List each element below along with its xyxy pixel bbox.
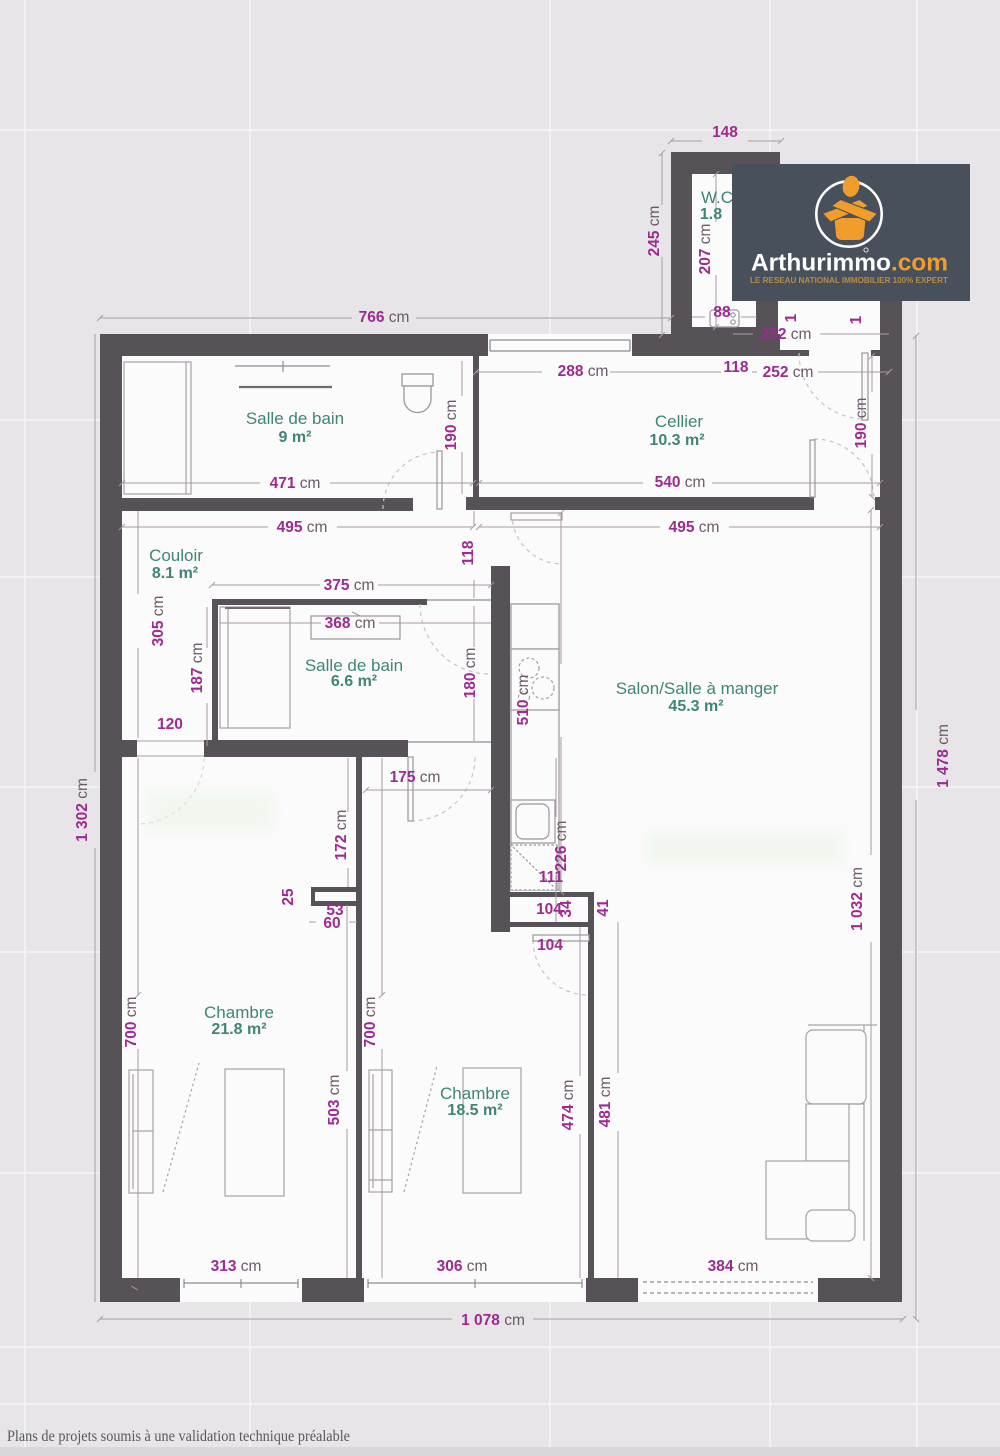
- svg-text:45.3 m²: 45.3 m²: [668, 698, 723, 715]
- svg-text:21.8 m²: 21.8 m²: [211, 1021, 266, 1038]
- svg-text:Arthurimmo.com: Arthurimmo.com: [751, 250, 948, 277]
- svg-text:252 cm: 252 cm: [761, 326, 812, 343]
- svg-text:471 cm: 471 cm: [270, 475, 321, 492]
- svg-text:18.5 m²: 18.5 m²: [447, 1102, 502, 1119]
- svg-text:766 cm: 766 cm: [359, 309, 410, 326]
- svg-text:288 cm: 288 cm: [558, 363, 609, 380]
- svg-text:10.3 m²: 10.3 m²: [649, 432, 704, 449]
- svg-text:474 cm: 474 cm: [560, 1080, 577, 1131]
- svg-text:187 cm: 187 cm: [189, 643, 206, 694]
- svg-text:175 cm: 175 cm: [390, 769, 441, 786]
- svg-text:190 cm: 190 cm: [853, 398, 870, 449]
- svg-text:6.6 m²: 6.6 m²: [331, 673, 377, 690]
- svg-text:1 078 cm: 1 078 cm: [461, 1312, 525, 1329]
- svg-text:495 cm: 495 cm: [277, 519, 328, 536]
- svg-text:Plans de projets soumis à une: Plans de projets soumis à une validation…: [7, 1428, 350, 1445]
- svg-text:495 cm: 495 cm: [669, 519, 720, 536]
- svg-text:190 cm: 190 cm: [443, 400, 460, 451]
- svg-text:118: 118: [460, 540, 477, 565]
- svg-text:1 478 cm: 1 478 cm: [935, 724, 952, 788]
- svg-text:180 cm: 180 cm: [462, 648, 479, 699]
- svg-text:9 m²: 9 m²: [279, 429, 312, 446]
- svg-text:120: 120: [157, 716, 183, 733]
- svg-text:W.C: W.C: [701, 188, 733, 207]
- svg-text:503 cm: 503 cm: [326, 1075, 343, 1126]
- svg-text:41: 41: [595, 899, 612, 917]
- svg-text:510 cm: 510 cm: [515, 675, 532, 726]
- svg-text:Chambre: Chambre: [440, 1084, 510, 1103]
- svg-text:1.8: 1.8: [700, 206, 722, 223]
- svg-text:148: 148: [712, 124, 738, 141]
- svg-text:245 cm: 245 cm: [646, 206, 663, 257]
- svg-text:1 302 cm: 1 302 cm: [74, 778, 91, 842]
- svg-text:LE RESEAU NATIONAL IMMOBILIER: LE RESEAU NATIONAL IMMOBILIER 100% EXPER…: [750, 275, 949, 285]
- svg-text:88: 88: [713, 304, 731, 321]
- svg-text:700 cm: 700 cm: [123, 997, 140, 1048]
- svg-text:481 cm: 481 cm: [597, 1077, 614, 1128]
- svg-text:1: 1: [783, 313, 800, 322]
- svg-text:368 cm: 368 cm: [325, 615, 376, 632]
- svg-text:384 cm: 384 cm: [708, 1258, 759, 1275]
- svg-text:1: 1: [848, 315, 865, 324]
- svg-text:8.1 m²: 8.1 m²: [152, 565, 198, 582]
- svg-text:207 cm: 207 cm: [697, 224, 714, 275]
- svg-text:1 032 cm: 1 032 cm: [849, 867, 866, 931]
- svg-text:252 cm: 252 cm: [763, 364, 814, 381]
- svg-text:Salon/Salle à manger: Salon/Salle à manger: [616, 679, 779, 698]
- svg-text:104: 104: [537, 937, 563, 954]
- svg-text:Cellier: Cellier: [655, 412, 704, 431]
- svg-text:Couloir: Couloir: [149, 546, 203, 565]
- svg-text:306 cm: 306 cm: [437, 1258, 488, 1275]
- svg-text:313 cm: 313 cm: [211, 1258, 262, 1275]
- svg-text:700 cm: 700 cm: [362, 997, 379, 1048]
- svg-text:305 cm: 305 cm: [150, 596, 167, 647]
- svg-text:34: 34: [558, 900, 575, 918]
- svg-text:375 cm: 375 cm: [324, 577, 375, 594]
- svg-text:Salle de bain: Salle de bain: [246, 409, 344, 428]
- svg-text:118: 118: [723, 359, 748, 376]
- svg-text:60: 60: [323, 915, 340, 932]
- svg-text:Chambre: Chambre: [204, 1003, 274, 1022]
- svg-text:540 cm: 540 cm: [655, 474, 706, 491]
- svg-text:172 cm: 172 cm: [333, 810, 350, 861]
- svg-text:226 cm: 226 cm: [553, 821, 570, 872]
- svg-text:25: 25: [280, 888, 297, 906]
